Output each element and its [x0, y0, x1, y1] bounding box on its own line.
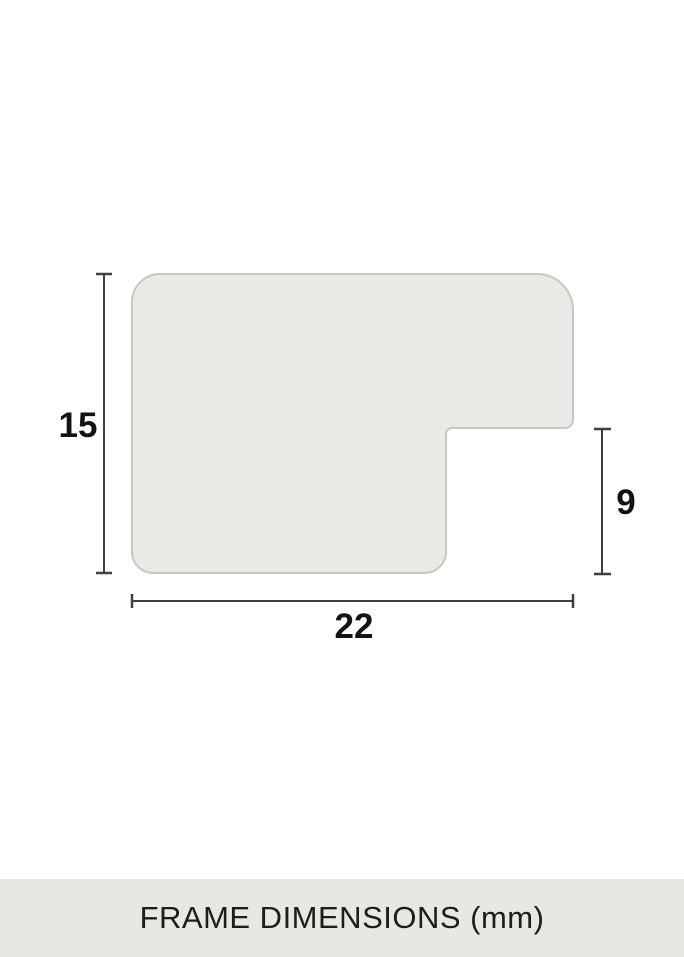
- dimension-label-height: 15: [59, 406, 98, 445]
- frame-dimensions-page: 15 9 22 FRAME DIMENSIONS (mm): [0, 0, 684, 957]
- caption-text: FRAME DIMENSIONS (mm): [140, 902, 545, 933]
- dimension-label-width: 22: [335, 607, 374, 646]
- frame-profile-diagram: 15 9 22: [0, 0, 684, 700]
- dimension-line-width: [132, 594, 573, 608]
- dimension-line-height: [96, 274, 112, 573]
- dimension-label-notch: 9: [616, 483, 635, 522]
- frame-profile-shape: [132, 274, 573, 573]
- caption-bar: FRAME DIMENSIONS (mm): [0, 879, 684, 957]
- dimension-line-notch: [594, 429, 611, 574]
